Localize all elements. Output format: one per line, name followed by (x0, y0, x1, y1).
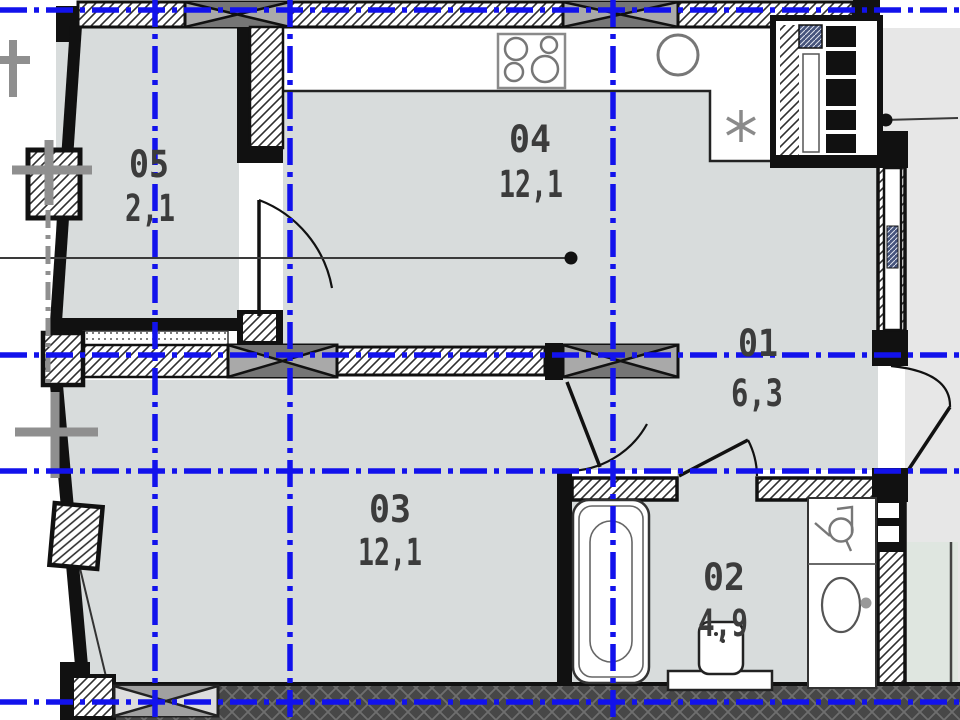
stove-icon (498, 34, 565, 88)
door-frame-block (872, 330, 908, 366)
wall-bath-top-left (572, 478, 677, 500)
room-02-area: 4,9 (698, 602, 748, 645)
wall-03-02 (557, 470, 572, 688)
kitchen-sink-icon (658, 35, 698, 75)
wall-05-04-insulated (250, 27, 283, 148)
wall-pilaster-lower-left (49, 503, 102, 569)
wall-xbox-left (228, 345, 337, 377)
wall-pilaster-upper-left (28, 150, 80, 218)
room-04-area: 12,1 (499, 163, 563, 206)
ventilation-shaft (773, 18, 880, 165)
room-05-number: 05 (129, 143, 169, 186)
room-03-number: 03 (369, 488, 411, 531)
room-05-area: 2,1 (125, 187, 175, 230)
room-01-area: 6,3 (731, 372, 783, 415)
door-frame-block (545, 343, 563, 380)
room-02-number: 02 (703, 556, 745, 599)
window-top-left (185, 2, 290, 27)
wall-top-segment (290, 2, 563, 27)
room-04-number: 04 (509, 118, 551, 161)
room-03-floor (56, 380, 557, 688)
balcony-area (907, 542, 958, 688)
room-03-area: 12,1 (358, 531, 422, 574)
door-frame-block (237, 146, 283, 163)
duct-cell (878, 526, 899, 542)
door-frame-hatch (243, 314, 276, 341)
wall-xbox-right (563, 345, 678, 377)
floor-plan-drawing: 05 2,1 04 12,1 01 6,3 03 12,1 02 4,9 (0, 0, 960, 720)
wall-04-03 (337, 347, 545, 375)
wall-room05-bottom (50, 318, 237, 331)
wall-pilaster-bottom (72, 676, 114, 718)
wall-05-04-core (237, 27, 250, 148)
window-top-right (563, 2, 678, 27)
wall-bath-top-right (757, 478, 878, 500)
entrance-door-handle (887, 226, 898, 268)
duct-cell (878, 503, 899, 518)
floor-plan-canvas: 05 2,1 04 12,1 01 6,3 03 12,1 02 4,9 (0, 0, 960, 720)
room-01-number: 01 (738, 322, 778, 365)
wall-top-segment (78, 2, 185, 27)
